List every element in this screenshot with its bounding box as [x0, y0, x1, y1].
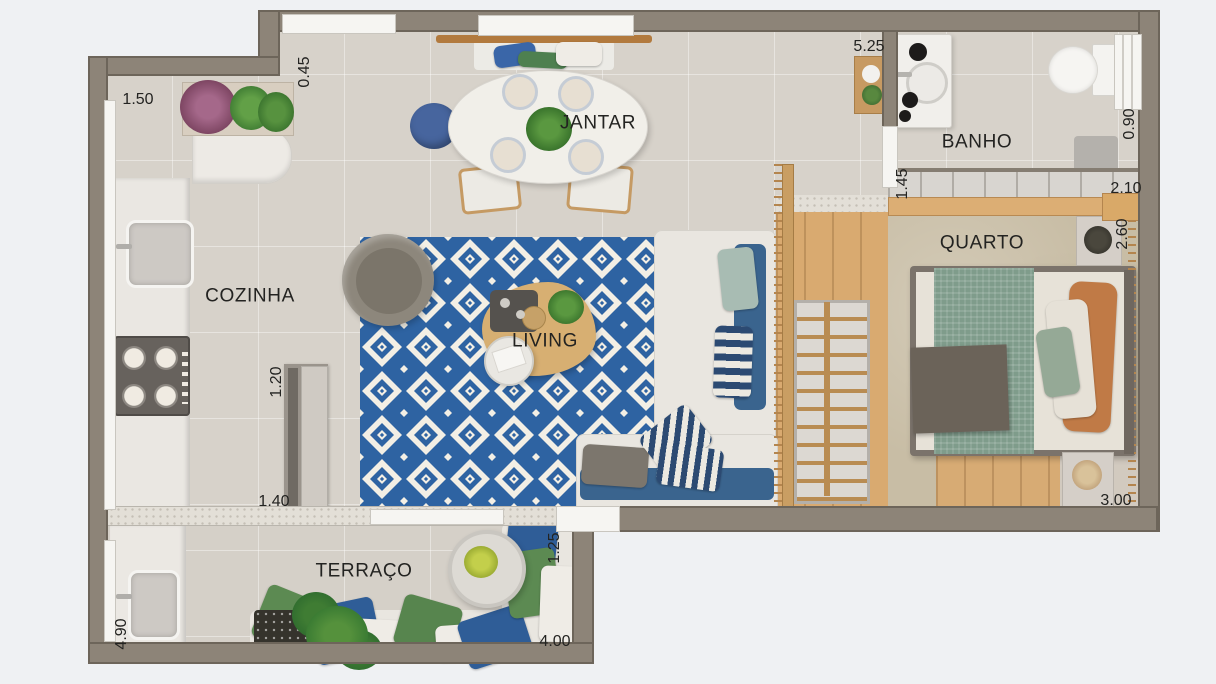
door-top-white — [478, 15, 634, 36]
dim-label: 1.20 — [269, 366, 285, 397]
dim-label: 1.40 — [258, 494, 289, 510]
cooktop-burner — [154, 384, 178, 408]
bench-pillow-white — [556, 42, 602, 66]
cooktop-burner — [122, 384, 146, 408]
cooktop-burner — [154, 346, 178, 370]
slat-divider-teeth — [774, 164, 782, 510]
room-label-quarto: QUARTO — [940, 234, 1024, 253]
wall-notch-horizontal — [88, 56, 280, 76]
outside-notch — [0, 0, 260, 58]
room-label-cozinha: COZINHA — [205, 287, 295, 306]
dim-label: 1.45 — [895, 168, 911, 199]
floorplan-canvas: JANTAR BANHO QUARTO COZINHA LIVING TERRA… — [0, 0, 1216, 684]
vanity-knob — [899, 110, 911, 122]
wardrobe-rack — [794, 300, 870, 504]
kitchen-fridge — [192, 128, 292, 184]
wall-bottom-main — [576, 506, 1158, 532]
cooktop-burner — [122, 346, 146, 370]
window-bathroom-right — [1114, 34, 1142, 110]
vanity-knob — [909, 43, 927, 61]
bed-throw-dark — [911, 344, 1010, 433]
slat-divider — [782, 164, 794, 510]
nightstand-plant-dark — [1084, 226, 1112, 254]
coffee-table-plant — [548, 290, 584, 324]
dinner-plate — [558, 76, 594, 112]
terrace-sink — [128, 570, 180, 640]
wardrobe-rack-post — [824, 302, 830, 496]
coffee-table-bowl — [522, 306, 546, 330]
terrace-door-sill — [108, 506, 578, 526]
nightstand-plant-beige — [1072, 460, 1102, 490]
sofa-pillow-striped — [713, 325, 753, 398]
dim-label: 0.90 — [1122, 108, 1138, 139]
dim-label: 2.10 — [1110, 181, 1141, 197]
vanity-faucet — [896, 72, 912, 77]
dim-label: 5.25 — [853, 39, 884, 55]
dinner-plate — [490, 137, 526, 173]
window-kitchen-left — [104, 100, 116, 510]
kitchen-faucet — [116, 244, 132, 249]
cooktop-knobs — [182, 352, 188, 404]
terrace-faucet — [116, 594, 132, 599]
tray-cup — [500, 298, 510, 308]
dim-label: 1.50 — [122, 92, 153, 108]
dining-wood-rail — [436, 35, 652, 43]
terrace-sill-end — [556, 506, 620, 532]
window-top-sill — [282, 14, 396, 34]
closet-wood-front — [888, 197, 1138, 216]
sofa-pillow-gray — [581, 444, 650, 489]
dim-label: 4.90 — [114, 618, 130, 649]
dim-label: 4.00 — [539, 634, 570, 650]
dinner-plate — [568, 139, 604, 175]
dim-label: 2.60 — [1115, 218, 1131, 249]
room-label-jantar: JANTAR — [560, 114, 636, 133]
dim-label: 1.25 — [547, 532, 563, 563]
partition-cabinet-slat — [288, 368, 298, 508]
wall-terrace-bottom — [88, 642, 594, 664]
sofa-pillow-teal — [717, 246, 759, 311]
sofa-pillow-striped — [655, 442, 724, 492]
terrace-sliding-door — [370, 509, 504, 525]
kitchen-sink — [126, 220, 194, 288]
dim-label: 3.00 — [1100, 493, 1131, 509]
console-plant — [862, 85, 882, 105]
armchair-cushion — [356, 248, 422, 314]
room-label-living: LIVING — [512, 332, 578, 351]
tray-cup — [516, 310, 525, 319]
partition-cabinet-panel — [301, 366, 328, 512]
toilet-bowl — [1048, 46, 1098, 94]
dim-label: 0.45 — [297, 56, 313, 87]
room-label-banho: BANHO — [942, 133, 1013, 152]
vanity-knob — [902, 92, 918, 108]
console-dish — [862, 65, 880, 83]
bed-headboard — [1124, 270, 1134, 454]
terrace-table-plant — [464, 546, 498, 578]
dinner-plate — [502, 74, 538, 110]
purple-plant — [180, 80, 236, 134]
room-label-terraco: TERRAÇO — [315, 562, 412, 581]
bedroom-door-jamb — [1102, 193, 1140, 221]
green-plant — [258, 92, 294, 132]
